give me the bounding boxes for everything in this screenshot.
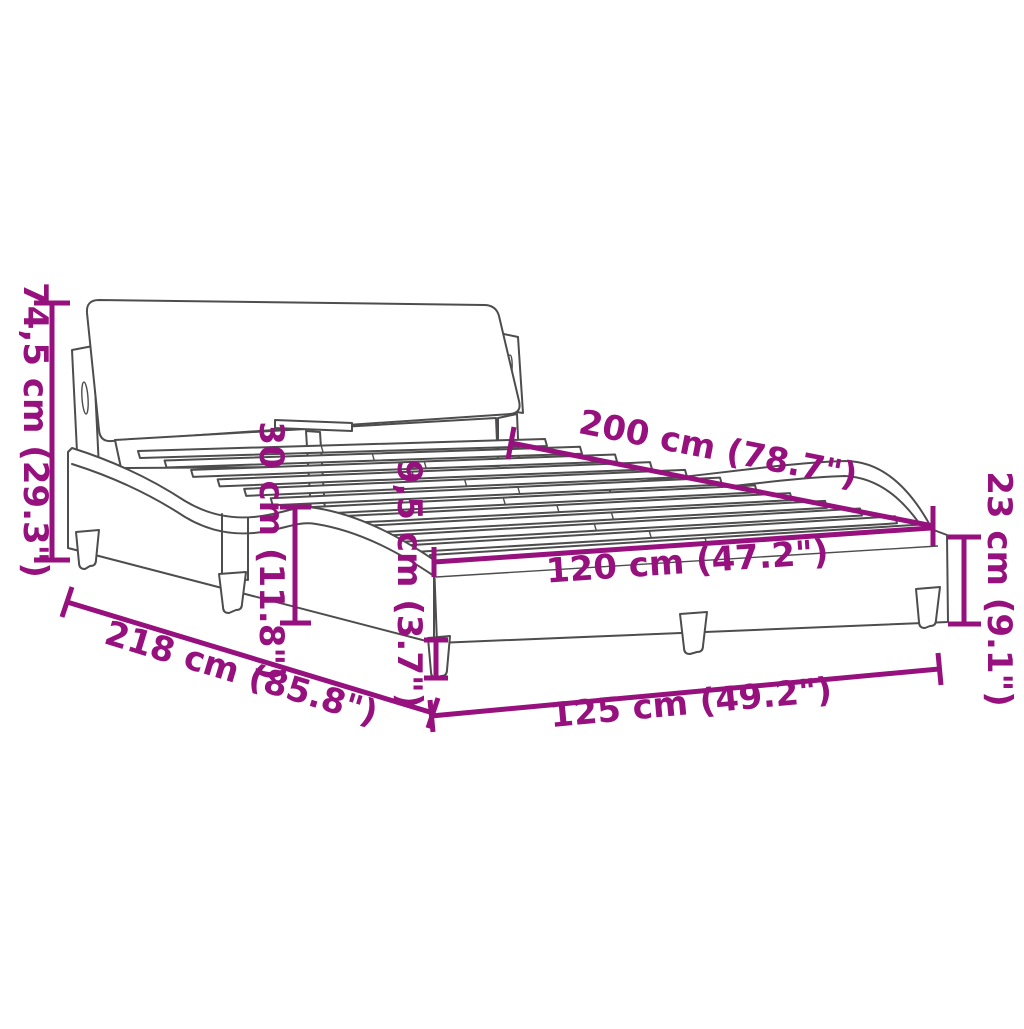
bed-leg: [76, 530, 99, 569]
bed-frame-drawing: [68, 300, 948, 678]
dimension-foot-end-height-label: 23 cm (9.1"): [979, 471, 1019, 707]
bed-leg: [916, 587, 940, 628]
dimension-leg-height-label: 9,5 cm (3.7"): [389, 460, 429, 709]
bed-leg: [219, 572, 246, 613]
dimension-total-width-label: 125 cm (49.2"): [548, 670, 833, 736]
bed-dimension-diagram: 74,5 cm (29.3") 218 cm (85.8") 30 cm (11…: [0, 0, 1024, 1024]
dimension-frame-height-label: 30 cm (11.8"): [251, 421, 291, 680]
dimension-total-length-label: 218 cm (85.8"): [100, 613, 382, 734]
dimension-foot-end-height: 23 cm (9.1"): [948, 471, 1019, 707]
diagram-page: 74,5 cm (29.3") 218 cm (85.8") 30 cm (11…: [0, 0, 1024, 1024]
dimension-line: [948, 537, 981, 624]
dimension-headboard-height: 74,5 cm (29.3"): [15, 282, 70, 578]
dimension-headboard-height-label: 74,5 cm (29.3"): [15, 282, 55, 578]
dimension-total-width: 125 cm (49.2"): [430, 653, 941, 736]
bed-leg: [680, 612, 707, 654]
